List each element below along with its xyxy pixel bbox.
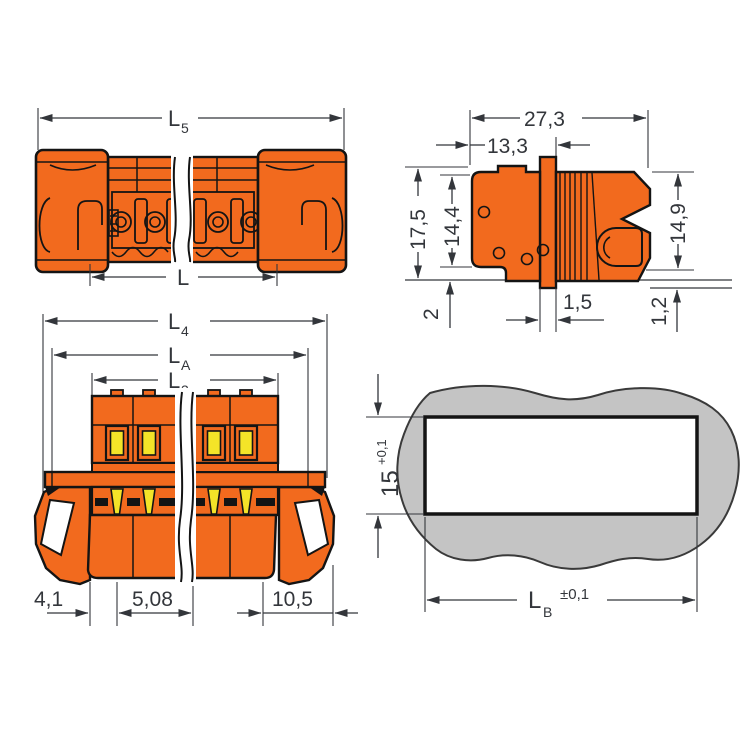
dim-label-L: L: [177, 265, 189, 290]
dim-label-L4: L: [168, 309, 180, 334]
drawing-page: L 5: [0, 0, 750, 750]
dim-5-08: 5,08: [132, 588, 173, 611]
cutout-rect: [425, 417, 697, 514]
dim-1-5: 1,5: [563, 291, 592, 314]
dim-label-L4-sub: 4: [181, 323, 189, 339]
dim-14-9: 14,9: [667, 203, 690, 244]
panel-cutout-view: 15 +0,1 L B ±0,1: [366, 374, 739, 620]
dim-17-5: 17,5: [407, 209, 430, 250]
side-view: L 5: [36, 106, 346, 290]
end-view-dim-body-height: 14,4: [440, 175, 472, 267]
side-view-left-cap: [36, 150, 108, 272]
side-view-dim-L5: L 5: [38, 106, 344, 150]
dim-10-5: 10,5: [272, 588, 313, 611]
clamp-slot: [194, 199, 206, 243]
dim-label-LB-sub: B: [543, 604, 552, 620]
front-view: L 4 L A L 3: [34, 309, 358, 626]
end-view-dim-flange-thickness: 1,5: [506, 288, 604, 332]
panel-blob: [397, 386, 738, 569]
side-view-dim-L: L: [90, 264, 277, 290]
dim-label-L5-sub: 5: [181, 120, 189, 136]
side-view-break: [171, 149, 193, 269]
side-view-right-cap: [258, 150, 346, 272]
end-view-dim-front-depth: 13,3: [436, 135, 590, 158]
front-view-break: [175, 388, 196, 584]
dim-4-1: 4,1: [34, 588, 63, 611]
dim-1-2: 1,2: [648, 297, 671, 326]
dim-label-L5: L: [168, 106, 180, 131]
dim-27-3: 27,3: [524, 108, 565, 131]
dim-label-LB: L: [528, 587, 541, 614]
dim-LB-tol: ±0,1: [560, 586, 589, 603]
end-view: 27,3 13,3: [405, 108, 732, 332]
end-view-dim-right-height: 14,9: [646, 172, 694, 270]
dim-13-3: 13,3: [487, 135, 528, 158]
technical-drawing: L 5: [0, 0, 750, 750]
dim-15-tol: +0,1: [374, 439, 389, 465]
dim-14-4: 14,4: [441, 206, 464, 247]
end-view-dim-gap: 1,2: [648, 290, 677, 332]
dim-label-LA-sub: A: [181, 357, 191, 373]
end-view-dim-below-panel: 2: [420, 282, 450, 328]
flange: [540, 157, 556, 288]
dim-15: 15: [377, 470, 404, 497]
dim-2: 2: [420, 308, 443, 320]
dim-label-LA: L: [168, 343, 180, 368]
